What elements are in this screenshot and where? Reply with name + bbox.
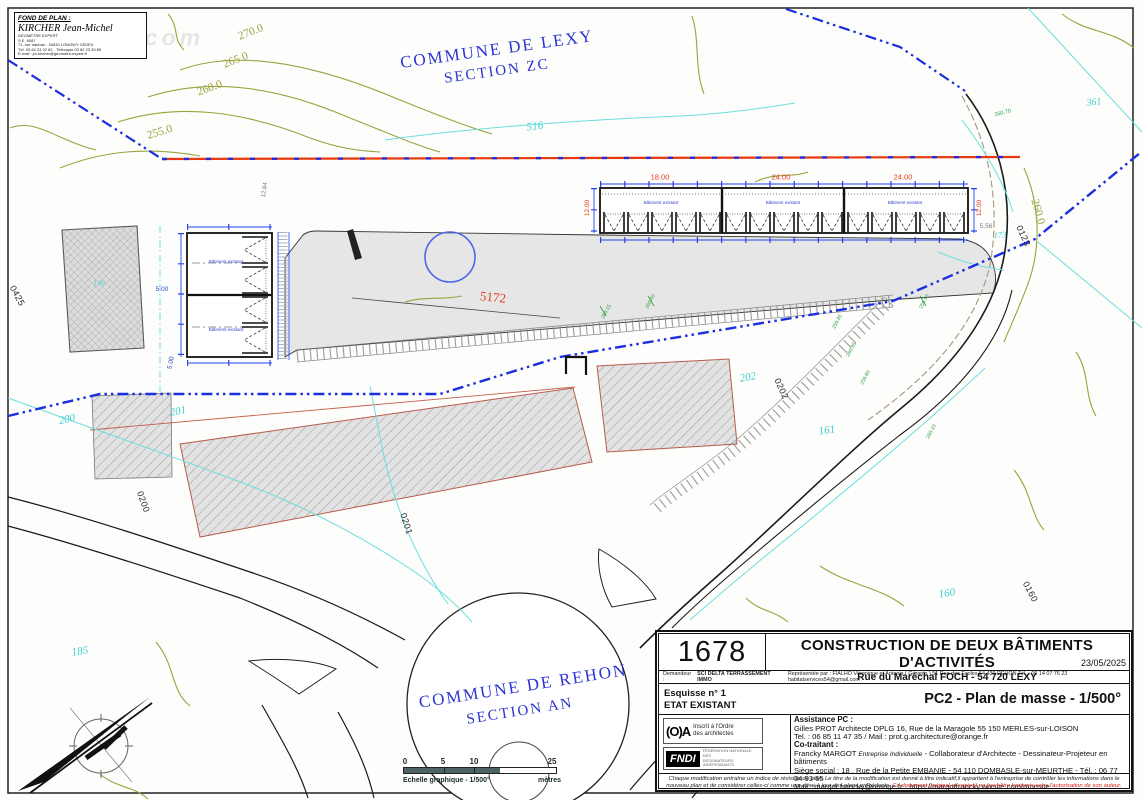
building-long xyxy=(594,184,974,240)
north-arrow-icon xyxy=(18,697,152,793)
parcel-173: 173 xyxy=(993,230,1006,240)
boundary-lines xyxy=(8,9,1140,416)
document-reference: PC2 - Plan de masse - 1/500° xyxy=(924,691,1121,707)
dim-500-a: 5.00 xyxy=(156,287,169,294)
parcel-199: 199 xyxy=(93,279,104,287)
parcel-516: 516 xyxy=(526,120,544,133)
client-label: Demandeur : xyxy=(663,671,693,683)
client-row: Demandeur : SCI DELTA TERRASSEMENT IMMO … xyxy=(659,670,1129,683)
building-hatched-east xyxy=(597,359,737,452)
scale-unit: mètres xyxy=(538,777,561,784)
stamp-heading: FOND DE PLAN : xyxy=(18,15,143,22)
scale-bar-graphic xyxy=(403,767,557,774)
building-annotation: Bâtiment existant xyxy=(888,201,923,206)
revision-row: Esquisse n° 1 ETAT EXISTANT PC2 - Plan d… xyxy=(659,683,1129,714)
project-title-cell: CONSTRUCTION DE DEUX BÂTIMENTS D'ACTIVIT… xyxy=(765,634,1129,670)
parcel-185: 185 xyxy=(71,645,89,658)
fndi-logo: FNDI FÉDÉRATION NATIONALE DES DESSINATEU… xyxy=(663,747,763,770)
parcel-5172: 5172 xyxy=(479,289,506,305)
legal-text-red: Ce document (original et copies) ne peut… xyxy=(892,783,1121,789)
scale-tick-10: 10 xyxy=(470,757,479,766)
fndi-logo-icon: FNDI xyxy=(666,751,700,767)
building-annotation: Bâtiment existant xyxy=(644,201,679,206)
title-block: 1678 CONSTRUCTION DE DEUX BÂTIMENTS D'AC… xyxy=(655,630,1133,792)
parcel-361: 361 xyxy=(1086,97,1102,108)
building-annotation: Bâtiment existant xyxy=(209,328,244,333)
fndi-line1: FÉDÉRATION NATIONALE DES xyxy=(703,748,752,758)
dim-24m-a: 24.00 xyxy=(772,173,791,181)
dim-12m-right: 12.00 xyxy=(977,200,984,216)
site-plan-page: proprio.com COMMUNE DE LEXY SECTION ZC C… xyxy=(0,0,1142,800)
parcel-161: 161 xyxy=(818,424,836,437)
ordre-line2: des architectes xyxy=(693,731,733,737)
client-details: Représentée par : FIALHO Véronique et An… xyxy=(788,671,1129,683)
sketch-number: Esquisse n° 1 xyxy=(664,688,726,699)
project-title: CONSTRUCTION DE DEUX BÂTIMENTS D'ACTIVIT… xyxy=(765,637,1129,671)
building-hatched-small xyxy=(92,393,172,479)
dim-12m-left: 12.00 xyxy=(585,200,592,216)
dim-556: 5.56 xyxy=(980,224,993,231)
traffic-island xyxy=(599,549,656,607)
ordre-architectes-logo: (O)A Inscrit à l'Ordre des architectes xyxy=(663,718,763,744)
scale-bar: 0 5 10 25 Echelle graphique - 1/500° mèt… xyxy=(398,755,566,787)
scale-tick-25: 25 xyxy=(548,757,557,766)
plan-state: ETAT EXISTANT xyxy=(664,700,736,711)
traffic-island xyxy=(249,659,336,694)
building-annotation: Bâtiment existant xyxy=(209,260,244,265)
dim-24m-b: 24.00 xyxy=(894,173,913,181)
fndi-line2: DESSINATEURS INDÉPENDANTS xyxy=(703,758,734,768)
building-bays xyxy=(181,227,289,363)
legal-footer: Chaque modification entraîne un indice d… xyxy=(659,773,1129,792)
contacts-row: (O)A Inscrit à l'Ordre des architectes F… xyxy=(659,714,1129,773)
building-hatched-left xyxy=(62,226,144,352)
stamp-line: E-mail : jm.kircher@geometre-expert.fr xyxy=(18,52,143,57)
dim-18m: 18.00 xyxy=(651,173,670,181)
building-annotation: Bâtiment existant xyxy=(766,201,801,206)
ordre-line1: Inscrit à l'Ordre xyxy=(693,724,734,730)
project-number: 1678 xyxy=(659,634,766,670)
scale-tick-5: 5 xyxy=(441,757,445,766)
platform-area xyxy=(285,231,996,357)
scale-tick-0: 0 xyxy=(403,757,407,766)
surveyor-stamp: FOND DE PLAN : KIRCHER Jean-Michel GEOME… xyxy=(14,12,147,59)
cotraitant-ei: Entreprise Individuelle xyxy=(858,751,922,758)
client-name: SCI DELTA TERRASSEMENT IMMO xyxy=(697,671,784,683)
ordre-logo-icon: (O)A xyxy=(666,724,690,739)
plan-date: 23/05/2025 xyxy=(1081,658,1126,668)
scale-caption: Echelle graphique - 1/500° xyxy=(403,777,490,784)
parcel-160: 160 xyxy=(938,587,956,600)
